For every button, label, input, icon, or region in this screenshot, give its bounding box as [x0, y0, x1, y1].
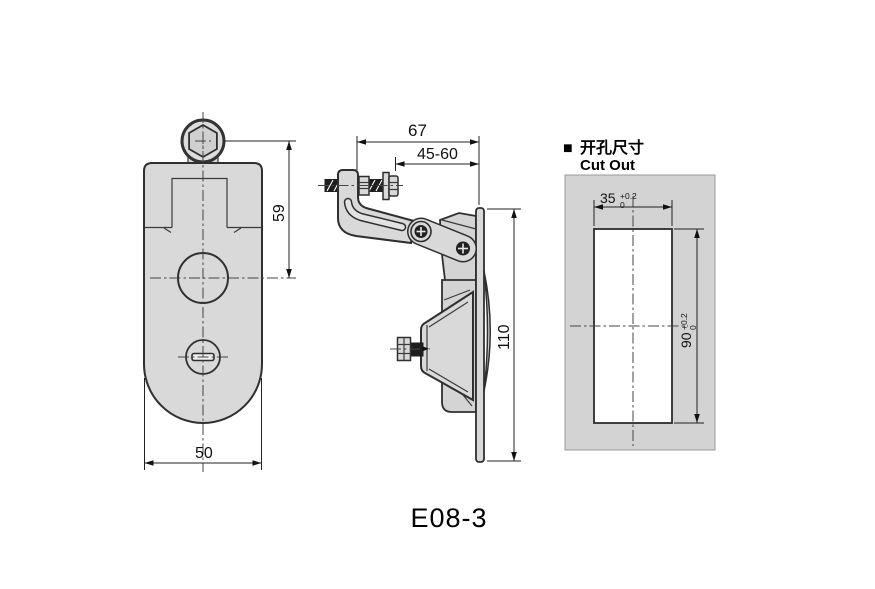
rivet-icon — [415, 225, 428, 238]
dimension-110: 110 — [487, 209, 521, 461]
technical-drawing: 59 50 — [0, 0, 875, 589]
dim-59-label: 59 — [271, 204, 288, 222]
dim-35-label: 35 — [600, 190, 616, 206]
panel-plate-side — [476, 208, 484, 462]
dim-45-60-label: 45-60 — [417, 146, 458, 163]
dim-35-tol-minus: 0 — [620, 200, 625, 210]
rivet-icon — [456, 242, 470, 256]
dim-90-tol-minus: 0 — [688, 325, 698, 330]
dim-50-label: 50 — [195, 445, 213, 462]
front-view: 59 50 — [144, 112, 296, 472]
dim-110-label: 110 — [496, 324, 513, 350]
cutout-heading: ■ 开孔尺寸 Cut Out — [563, 138, 644, 174]
latch-pawl — [484, 271, 490, 391]
cutout-label-cn: 开孔尺寸 — [580, 138, 644, 157]
dimension-67: 67 — [357, 121, 479, 205]
cutout-label-en: Cut Out — [580, 157, 635, 174]
dim-90-label: 90 — [678, 332, 694, 348]
dimension-45-60: 45-60 — [396, 146, 480, 171]
section-marker-icon: ■ — [563, 140, 573, 157]
side-view: 67 45-60 110 — [318, 121, 521, 462]
cutout-view: ■ 开孔尺寸 Cut Out 35 +0.2 0 90 — [563, 138, 715, 450]
part-number-title: E08-3 — [410, 503, 487, 533]
housing-cup — [421, 292, 473, 400]
dim-67-label: 67 — [408, 121, 427, 140]
drawing-sheet: 59 50 — [0, 0, 875, 589]
